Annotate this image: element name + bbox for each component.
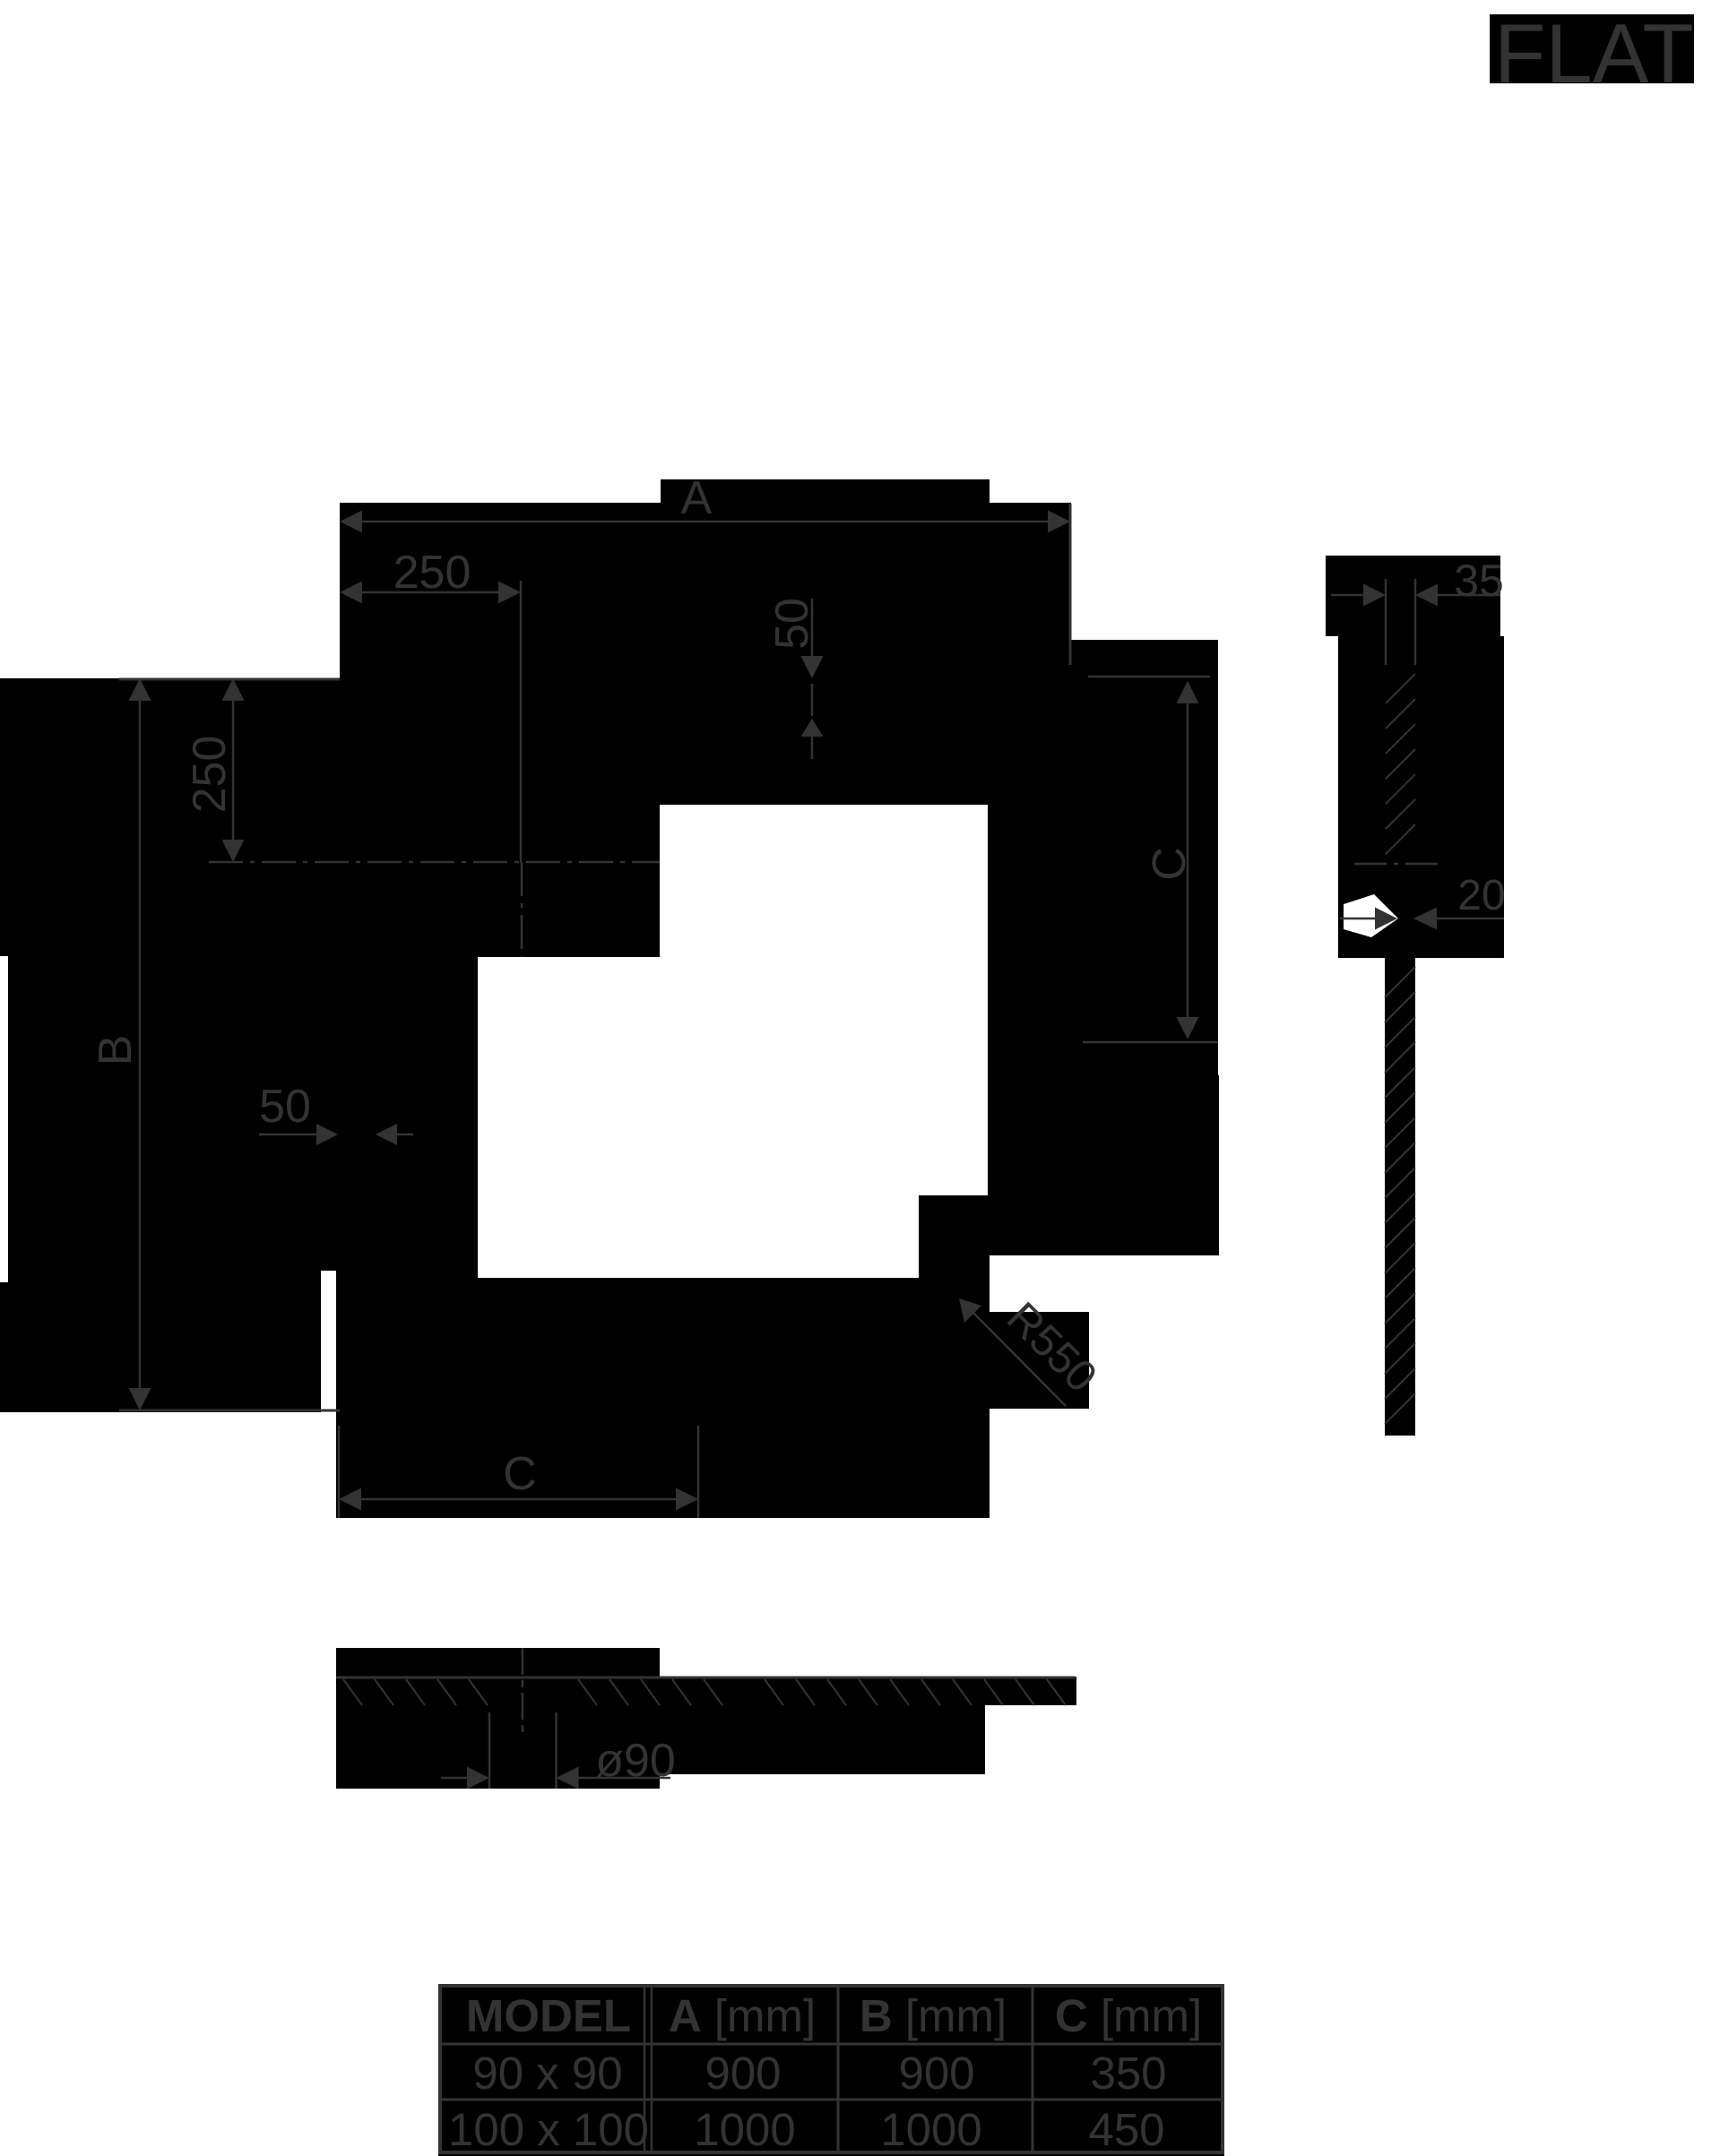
svg-text:350: 350: [1090, 2048, 1166, 2099]
svg-text:A: A: [681, 472, 713, 524]
svg-text:100 x 100: 100 x 100: [448, 2104, 649, 2155]
svg-text:C [mm]: C [mm]: [1055, 1990, 1202, 2041]
svg-text:900: 900: [704, 2048, 781, 2099]
svg-text:B: B: [90, 1035, 142, 1066]
svg-text:900: 900: [898, 2048, 974, 2099]
svg-text:50: 50: [766, 598, 818, 650]
svg-text:ø90: ø90: [595, 1735, 676, 1787]
svg-text:1000: 1000: [694, 2104, 795, 2155]
svg-text:FLAT: FLAT: [1494, 6, 1694, 100]
svg-text:C: C: [1144, 847, 1196, 881]
svg-text:1000: 1000: [880, 2104, 981, 2155]
svg-text:B [mm]: B [mm]: [860, 1990, 1007, 2041]
svg-text:450: 450: [1088, 2104, 1164, 2155]
svg-text:250: 250: [393, 547, 471, 599]
svg-text:90 x 90: 90 x 90: [472, 2048, 622, 2099]
svg-text:35: 35: [1454, 556, 1504, 606]
svg-text:MODEL: MODEL: [466, 1990, 631, 2041]
svg-text:A [mm]: A [mm]: [669, 1990, 816, 2041]
svg-text:50: 50: [259, 1081, 311, 1133]
svg-text:250: 250: [184, 736, 236, 814]
svg-text:C: C: [503, 1448, 537, 1500]
svg-text:20: 20: [1457, 872, 1505, 919]
